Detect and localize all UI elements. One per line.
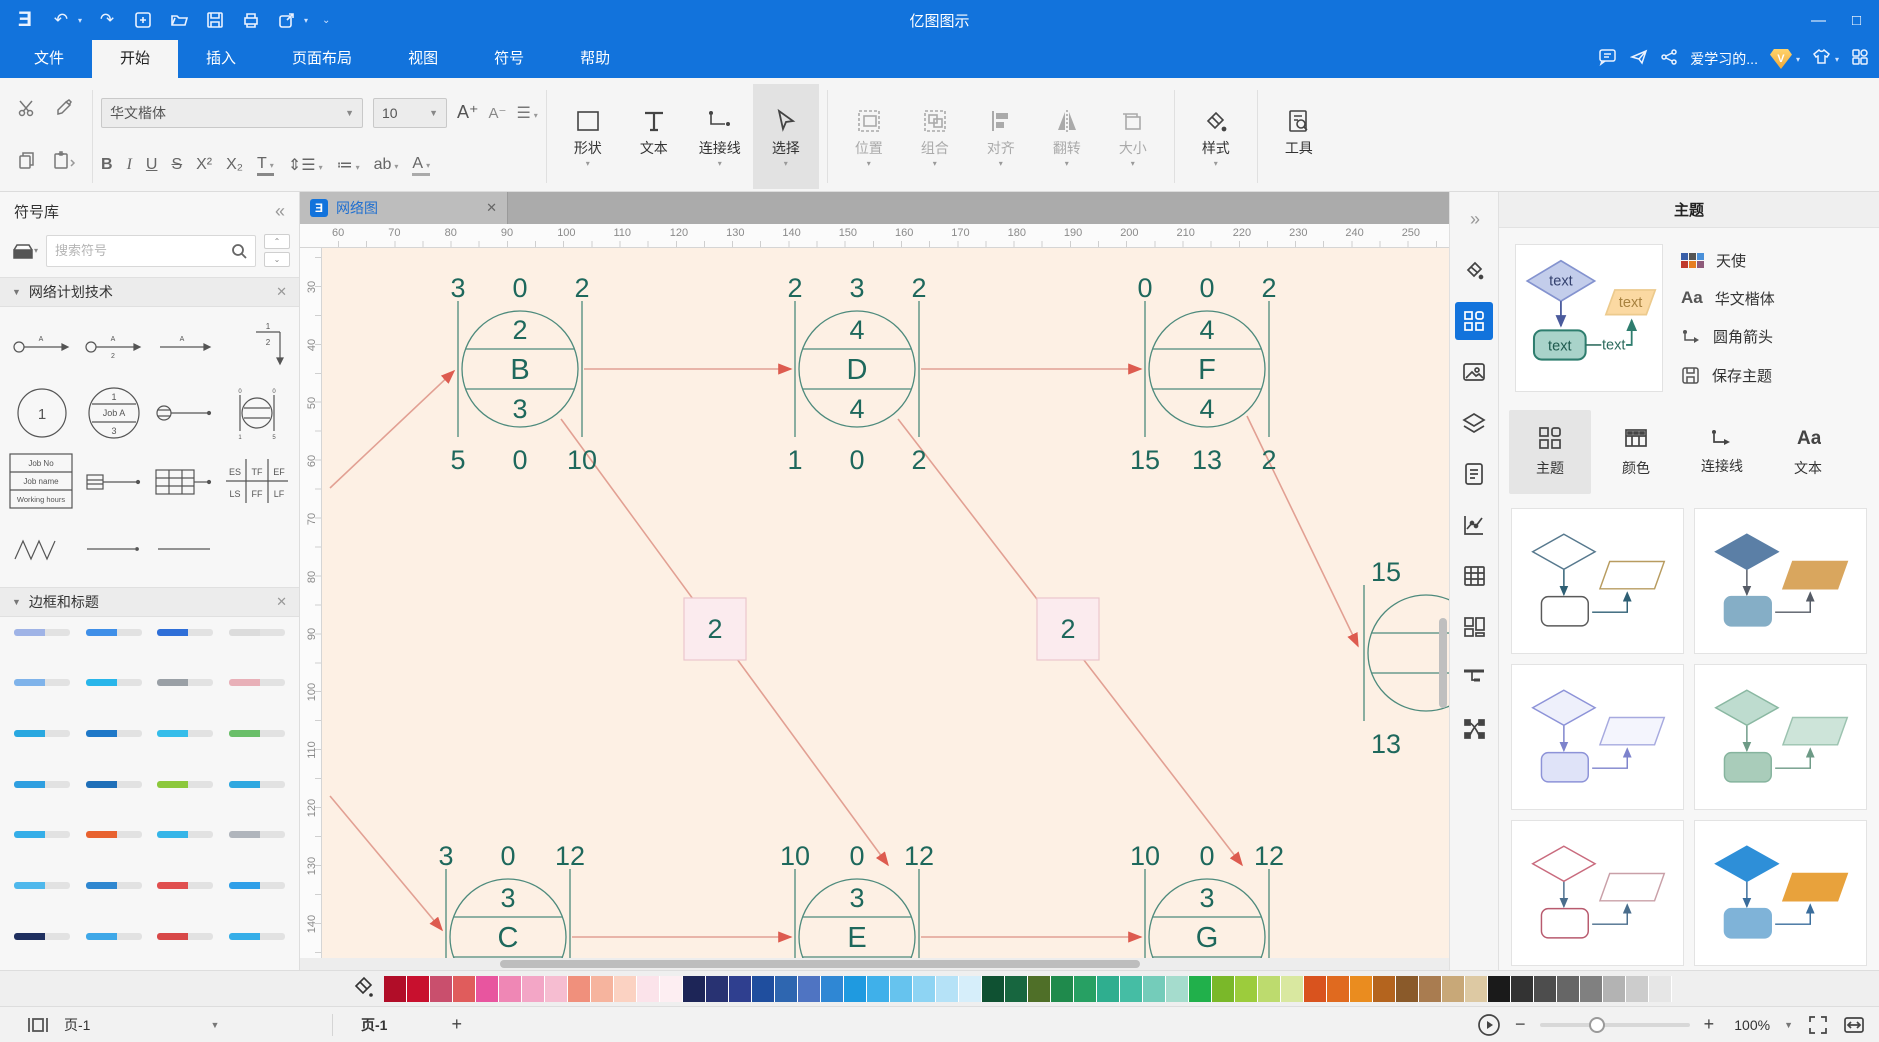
color-swatch[interactable] (522, 976, 545, 1002)
symbol-library-title: 符号库 (14, 201, 59, 222)
svg-text:2: 2 (111, 353, 115, 360)
color-swatch[interactable] (1281, 976, 1304, 1002)
color-swatch[interactable] (1488, 976, 1511, 1002)
library-scroll-down-button[interactable]: ⌄ (264, 252, 290, 267)
zoom-slider-knob[interactable] (1589, 1017, 1605, 1033)
superscript-button[interactable]: X² (196, 156, 212, 174)
style-label: 样式 (1202, 138, 1230, 158)
fill-style-icon[interactable] (1455, 251, 1493, 289)
border-title-thumbnail[interactable] (6, 726, 78, 740)
share-caret[interactable]: ▾ (304, 16, 308, 25)
share-nodes-icon[interactable] (1660, 48, 1678, 71)
dependency-edge[interactable] (330, 796, 442, 930)
vertical-scrollbar[interactable] (1439, 618, 1447, 708)
ruler-label: 210 (1177, 227, 1195, 239)
color-swatch[interactable] (499, 976, 522, 1002)
ribbon-flip-button[interactable]: 翻转▾ (1034, 84, 1100, 189)
section-close-icon[interactable]: ✕ (276, 594, 287, 610)
font-family-select[interactable]: 华文楷体▼ (101, 98, 363, 128)
horizontal-scrollbar[interactable] (300, 958, 1449, 970)
fullscreen-icon[interactable] (1807, 1014, 1829, 1036)
node-value: C (498, 922, 519, 954)
activity-node-B[interactable]: 3022B35010 (450, 273, 597, 475)
ruler-label: 40 (306, 335, 318, 355)
svg-text:0: 0 (272, 389, 276, 395)
color-swatch[interactable] (729, 976, 752, 1002)
activity-node-G[interactable]: 100123G (1130, 841, 1284, 958)
skin-icon[interactable] (1812, 48, 1831, 70)
border-title-thumbnail[interactable] (150, 828, 222, 842)
color-swatch[interactable] (1120, 976, 1143, 1002)
svg-text:0: 0 (238, 389, 242, 395)
color-swatch[interactable] (1051, 976, 1074, 1002)
ruler-label: 60 (306, 451, 318, 471)
line-spacing-button[interactable]: ⇕☰▾ (288, 155, 323, 175)
section-network-planning[interactable]: ▼ 网络计划技术 ✕ (0, 277, 299, 307)
color-swatch[interactable] (1189, 976, 1212, 1002)
color-swatch[interactable] (1028, 976, 1051, 1002)
border-title-thumbnail[interactable] (78, 726, 150, 740)
underline-button[interactable]: U (146, 156, 158, 174)
color-swatch[interactable] (821, 976, 844, 1002)
border-title-thumbnail[interactable] (221, 929, 293, 943)
symbol-zigzag[interactable] (6, 517, 78, 581)
color-swatch[interactable] (1166, 976, 1189, 1002)
italic-button[interactable]: I (127, 156, 132, 174)
symbol-small-node-arrow[interactable] (150, 381, 222, 445)
color-swatch[interactable] (706, 976, 729, 1002)
menu-tab-1[interactable]: 开始 (92, 40, 178, 78)
strikethrough-button[interactable]: S (171, 156, 182, 174)
color-swatch[interactable] (1511, 976, 1534, 1002)
node-value: E (847, 922, 866, 954)
svg-text:5: 5 (272, 435, 276, 441)
maximize-button[interactable]: □ (1852, 12, 1861, 29)
symbol-event-arrow[interactable]: A (6, 313, 78, 377)
menu-tab-2[interactable]: 插入 (178, 40, 264, 78)
symbol-event-arrow-2[interactable]: A2 (78, 313, 150, 377)
color-swatch[interactable] (1557, 976, 1580, 1002)
skin-caret[interactable]: ▾ (1835, 55, 1839, 64)
document-tab[interactable]: Ǝ 网络图 ✕ (300, 192, 508, 224)
color-swatch[interactable] (614, 976, 637, 1002)
border-title-thumbnail[interactable] (6, 625, 78, 639)
theme-card-0[interactable] (1511, 508, 1684, 654)
theme-font[interactable]: Aa 华文楷体 (1681, 288, 1775, 309)
theme-card-2[interactable] (1511, 664, 1684, 810)
theme-card-5[interactable] (1694, 820, 1867, 966)
border-title-thumbnail[interactable] (150, 777, 222, 791)
save-button[interactable] (204, 9, 226, 31)
copy-button[interactable] (17, 150, 37, 175)
svg-text:FF: FF (252, 489, 263, 499)
theme-card-1[interactable] (1694, 508, 1867, 654)
border-title-thumbnail[interactable] (221, 676, 293, 690)
image-panel-icon[interactable] (1455, 353, 1493, 391)
node-value: 2 (1261, 445, 1276, 475)
symbol-search-box[interactable] (46, 235, 256, 267)
color-swatch[interactable] (844, 976, 867, 1002)
title-bar: Ǝ ↶▾ ↷ ▾ ⌄ 亿图图示 — □ (0, 0, 1879, 40)
symbol-grid: A A2 A 12 1 1Job A3 0015 Job NoJob nameW… (0, 307, 299, 587)
subscript-button[interactable]: X₂ (226, 156, 243, 174)
redo-button[interactable]: ↷ (96, 9, 118, 31)
theme-connector[interactable]: 圆角箭头 (1681, 326, 1775, 347)
presentation-play-icon[interactable] (1477, 1013, 1501, 1037)
color-swatch[interactable] (683, 976, 706, 1002)
current-theme-preview: text text text text (1515, 244, 1663, 392)
layers-panel-icon[interactable] (1455, 404, 1493, 442)
section-close-icon[interactable]: ✕ (276, 284, 287, 300)
increase-font-button[interactable]: A⁺ (457, 102, 479, 123)
font-size-value: 10 (382, 105, 419, 121)
paste-button[interactable] (52, 150, 76, 175)
color-swatch[interactable] (775, 976, 798, 1002)
color-swatch[interactable] (1212, 976, 1235, 1002)
node-value: 1 (787, 445, 802, 475)
color-swatch[interactable] (1603, 976, 1626, 1002)
ribbon-align-button[interactable]: 对齐▾ (968, 84, 1034, 189)
color-swatch[interactable] (1097, 976, 1120, 1002)
border-title-thumbnail[interactable] (221, 828, 293, 842)
svg-text:ES: ES (229, 467, 241, 477)
ruler-label: 230 (1289, 227, 1307, 239)
list-button[interactable]: ≔▾ (337, 155, 360, 175)
symbol-es-ef-table[interactable]: ESTFEFLSFFLF (221, 449, 293, 513)
menu-bar: 文件开始插入页面布局视图符号帮助 爱学习的... V ▾ ▾ (0, 40, 1879, 78)
border-title-thumbnail[interactable] (78, 879, 150, 893)
ribbon-position-button[interactable]: 位置▾ (836, 84, 902, 189)
highlight-button[interactable]: ab▾ (374, 156, 399, 174)
section-expand-icon[interactable]: ▼ (12, 287, 21, 297)
font-icon: Aa (1681, 288, 1703, 308)
ruler-label: 220 (1233, 227, 1251, 239)
node-value: 3 (512, 394, 527, 424)
color-swatch[interactable] (890, 976, 913, 1002)
activity-node-C[interactable]: 30123C (438, 841, 585, 958)
ruler-label: 150 (839, 227, 857, 239)
ruler-label: 60 (332, 227, 344, 239)
border-title-thumbnail[interactable] (221, 726, 293, 740)
ruler-label: 80 (306, 567, 318, 587)
ribbon-group-button[interactable]: 组合▾ (902, 84, 968, 189)
symbol-line[interactable] (150, 517, 222, 581)
ruler-label: 120 (306, 798, 318, 818)
color-swatch[interactable] (1373, 976, 1396, 1002)
expand-panel-icon[interactable]: » (1455, 200, 1493, 238)
send-icon[interactable] (1630, 48, 1648, 71)
symbol-empty (221, 517, 293, 581)
node-value: 2 (911, 445, 926, 475)
fill-color-icon[interactable] (352, 974, 374, 1003)
apps-grid-icon[interactable] (1851, 48, 1869, 71)
color-swatch[interactable] (913, 976, 936, 1002)
activity-node-E[interactable]: 100123E (780, 841, 934, 958)
border-title-thumbnail[interactable] (150, 676, 222, 690)
border-title-thumbnail[interactable] (150, 879, 222, 893)
theme-tab-color[interactable]: 颜色 (1595, 410, 1677, 494)
symbol-small-table-arrow[interactable] (78, 449, 150, 513)
section-expand-icon[interactable]: ▼ (12, 597, 21, 607)
fit-width-icon[interactable] (1843, 1014, 1865, 1036)
bold-button[interactable]: B (101, 156, 113, 174)
color-swatch[interactable] (936, 976, 959, 1002)
page-tab[interactable]: 页-1 (361, 1015, 387, 1035)
node-value: 4 (1199, 394, 1214, 424)
feedback-icon[interactable] (1598, 48, 1618, 71)
svg-text:LS: LS (230, 489, 241, 499)
outline-panel-icon[interactable] (1455, 659, 1493, 697)
ruler-label: 130 (306, 856, 318, 876)
color-swatch[interactable] (1442, 976, 1465, 1002)
paint-bucket-icon (1203, 108, 1229, 134)
theme-tab-text[interactable]: Aa文本 (1767, 410, 1849, 494)
border-title-thumbnail[interactable] (6, 929, 78, 943)
search-icon (231, 243, 247, 259)
node-value: 2 (707, 614, 722, 644)
app-logo-icon: Ǝ (14, 9, 36, 31)
relationship-panel-icon[interactable] (1455, 710, 1493, 748)
style-button[interactable]: 样式 ▾ (1183, 84, 1249, 189)
color-swatch[interactable] (982, 976, 1005, 1002)
theme-panel-icon[interactable] (1455, 302, 1493, 340)
activity-node-partial[interactable]: 1513 (1364, 557, 1449, 759)
ruler-label: 90 (306, 624, 318, 644)
zoom-out-button[interactable]: − (1515, 1014, 1526, 1035)
notes-panel-icon[interactable] (1455, 455, 1493, 493)
node-value: 2 (574, 273, 589, 303)
svg-text:Working hours: Working hours (17, 495, 65, 504)
color-swatch[interactable] (1258, 976, 1281, 1002)
color-swatch[interactable] (1396, 976, 1419, 1002)
ribbon: 华文楷体▼ 10▼ A⁺ A⁻ ☰▾ B I U S X² X₂ T▾ ⇕☰▾ … (0, 78, 1879, 192)
theme-panel: 主题 text text text (1499, 192, 1879, 970)
app-window: Ǝ ↶▾ ↷ ▾ ⌄ 亿图图示 — □ 文件开始插入页面布局视图符号帮助 爱学习… (0, 0, 1879, 1042)
color-swatch[interactable] (453, 976, 476, 1002)
node-value: 13 (1371, 729, 1401, 759)
zoom-level[interactable]: 100% (1728, 1017, 1770, 1033)
font-family-value: 华文楷体 (110, 103, 335, 123)
menu-tab-3[interactable]: 页面布局 (264, 40, 380, 78)
color-swatch[interactable] (1327, 976, 1350, 1002)
node-value: 0 (512, 273, 527, 303)
color-swatch[interactable] (407, 976, 430, 1002)
tool-button[interactable]: 工具 ▾ (1266, 84, 1332, 189)
svg-text:LF: LF (274, 489, 285, 499)
pattern-panel-icon[interactable] (1455, 608, 1493, 646)
symbol-line-dot[interactable] (78, 517, 150, 581)
color-swatch[interactable] (1626, 976, 1649, 1002)
vip-caret[interactable]: ▾ (1796, 55, 1800, 64)
color-swatch[interactable] (1350, 976, 1373, 1002)
border-title-thumbnail[interactable] (6, 777, 78, 791)
symbol-node-circle[interactable]: 1 (6, 381, 78, 445)
color-swatch[interactable] (959, 976, 982, 1002)
account-name[interactable]: 爱学习的... (1690, 49, 1758, 69)
network-diagram[interactable]: 3022B350102324D41020024F41513230123C1001… (322, 248, 1449, 958)
symbol-node-with-times[interactable]: 0015 (221, 381, 293, 445)
chart-panel-icon[interactable] (1455, 506, 1493, 544)
ribbon-connector-button[interactable]: 连接线▾ (687, 84, 753, 189)
color-swatch[interactable] (545, 976, 568, 1002)
ruler-label: 250 (1402, 227, 1420, 239)
open-file-button[interactable] (168, 9, 190, 31)
theme-card-4[interactable] (1511, 820, 1684, 966)
border-title-thumbnail[interactable] (6, 879, 78, 893)
color-swatch[interactable] (1649, 976, 1672, 1002)
ribbon-shape-button[interactable]: 形状▾ (555, 84, 621, 189)
border-title-thumbnail[interactable] (150, 929, 222, 943)
format-painter-button[interactable] (54, 98, 74, 123)
node-value: 3 (450, 273, 465, 303)
font-color-button[interactable]: A▾ (412, 155, 430, 176)
zoom-caret[interactable]: ▼ (1784, 1020, 1793, 1030)
share-button[interactable] (276, 9, 298, 31)
ribbon-text-button[interactable]: 文本▾ (621, 84, 687, 189)
svg-text:1: 1 (238, 435, 242, 441)
node-value: 4 (849, 394, 864, 424)
table-panel-icon[interactable] (1455, 557, 1493, 595)
color-swatch[interactable] (1465, 976, 1488, 1002)
node-value: 0 (1137, 273, 1152, 303)
tool-label: 工具 (1285, 138, 1313, 158)
decrease-font-button[interactable]: A⁻ (489, 104, 507, 122)
print-button[interactable] (240, 9, 262, 31)
ribbon-size-button[interactable]: 大小▾ (1100, 84, 1166, 189)
border-title-thumbnail[interactable] (78, 625, 150, 639)
add-page-button[interactable]: + (451, 1014, 462, 1035)
color-swatch[interactable] (430, 976, 453, 1002)
node-value: 2 (512, 315, 527, 345)
new-file-button[interactable] (132, 9, 154, 31)
vip-badge[interactable]: V (1770, 49, 1792, 69)
menu-tab-5[interactable]: 符号 (466, 40, 552, 78)
svg-text:text: text (1548, 338, 1572, 354)
cut-button[interactable] (17, 98, 37, 123)
minimize-button[interactable]: — (1811, 12, 1826, 29)
section-borders-titles[interactable]: ▼ 边框和标题 ✕ (0, 587, 299, 617)
ruler-label: 110 (614, 227, 632, 239)
color-swatch[interactable] (867, 976, 890, 1002)
svg-text:3: 3 (111, 426, 116, 436)
border-title-thumbnail[interactable] (6, 828, 78, 842)
symbol-fraction-connector[interactable]: 12 (221, 313, 293, 377)
document-tab-close-icon[interactable]: ✕ (486, 200, 497, 216)
undo-button[interactable]: ↶ (50, 9, 72, 31)
document-tab-label: 网络图 (336, 198, 478, 218)
border-title-thumbnail[interactable] (78, 929, 150, 943)
duration-box[interactable]: 2 (1037, 598, 1099, 660)
theme-tab-theme[interactable]: 主题 (1509, 410, 1591, 494)
text-color-button[interactable]: T▾ (257, 155, 274, 176)
color-swatch[interactable] (1580, 976, 1603, 1002)
symbol-search-input[interactable] (55, 243, 231, 258)
connector-icon (1681, 328, 1701, 346)
border-title-thumbnail[interactable] (221, 777, 293, 791)
theme-color-scheme[interactable]: 天使 (1681, 250, 1775, 271)
theme-tab-connector[interactable]: 连接线 (1681, 410, 1763, 494)
library-drawer-icon[interactable]: ▾ (12, 242, 38, 260)
border-title-thumbnail[interactable] (150, 625, 222, 639)
zoom-slider[interactable] (1540, 1023, 1690, 1027)
pages-view-icon[interactable] (26, 1016, 50, 1034)
drawing-canvas[interactable]: 30405060708090100110120130140150 3022B35… (300, 248, 1449, 958)
symbol-grid-table-arrow[interactable] (150, 449, 222, 513)
zoom-in-button[interactable]: + (1704, 1014, 1715, 1035)
save-theme-button[interactable]: 保存主题 (1681, 365, 1775, 386)
ruler-label: 190 (1064, 227, 1082, 239)
right-tool-strip: » (1449, 192, 1499, 970)
theme-card-3[interactable] (1694, 664, 1867, 810)
align-button[interactable]: ☰▾ (516, 103, 537, 123)
border-title-thumbnail[interactable] (78, 676, 150, 690)
color-swatch[interactable] (798, 976, 821, 1002)
activity-node-D[interactable]: 2324D4102 (787, 273, 926, 475)
border-title-thumbnail[interactable] (221, 879, 293, 893)
node-value: 15 (1130, 445, 1160, 475)
menu-tab-6[interactable]: 帮助 (552, 40, 638, 78)
color-swatch[interactable] (1235, 976, 1258, 1002)
color-swatch[interactable] (752, 976, 775, 1002)
activity-node-F[interactable]: 0024F415132 (1130, 273, 1277, 475)
color-swatch[interactable] (476, 976, 499, 1002)
color-swatch[interactable] (591, 976, 614, 1002)
customize-toolbar-caret[interactable]: ⌄ (322, 15, 330, 26)
node-value: 0 (849, 445, 864, 475)
page-selector[interactable]: 页-1 ▼ (64, 1015, 304, 1035)
color-swatch[interactable] (660, 976, 683, 1002)
svg-text:A: A (110, 336, 115, 343)
color-swatch[interactable] (1304, 976, 1327, 1002)
duration-box[interactable]: 2 (684, 598, 746, 660)
collapse-sidebar-icon[interactable]: « (275, 201, 285, 222)
menu-tab-0[interactable]: 文件 (6, 40, 92, 78)
color-swatch[interactable] (568, 976, 591, 1002)
color-swatch[interactable] (384, 976, 407, 1002)
color-swatch[interactable] (1074, 976, 1097, 1002)
node-value: 10 (1130, 841, 1160, 871)
svg-text:text: text (1602, 337, 1626, 353)
dependency-edge[interactable] (330, 371, 454, 488)
font-size-select[interactable]: 10▼ (373, 98, 447, 128)
ribbon-select-button[interactable]: 选择▾ (753, 84, 819, 189)
symbol-activity-arrow[interactable]: A (150, 313, 222, 377)
ruler-label: 50 (306, 393, 318, 413)
border-title-thumbnail[interactable] (6, 676, 78, 690)
border-title-thumbnail[interactable] (221, 625, 293, 639)
library-scroll-up-button[interactable]: ⌃ (264, 234, 290, 249)
color-swatch[interactable] (637, 976, 660, 1002)
ruler-label: 160 (895, 227, 913, 239)
node-value: 3 (1199, 883, 1214, 913)
undo-caret[interactable]: ▾ (78, 16, 82, 25)
color-swatch[interactable] (1419, 976, 1442, 1002)
border-title-thumbnail[interactable] (78, 777, 150, 791)
ruler-label: 70 (306, 509, 318, 529)
border-title-thumbnail[interactable] (78, 828, 150, 842)
color-swatch[interactable] (1005, 976, 1028, 1002)
color-swatch[interactable] (1534, 976, 1557, 1002)
svg-text:1: 1 (38, 406, 46, 423)
color-swatch[interactable] (1143, 976, 1166, 1002)
quick-access-toolbar: Ǝ ↶▾ ↷ ▾ ⌄ (0, 9, 330, 31)
symbol-job-circle[interactable]: 1Job A3 (78, 381, 150, 445)
border-title-thumbnail[interactable] (150, 726, 222, 740)
palette-icon (1681, 253, 1704, 268)
menu-tab-4[interactable]: 视图 (380, 40, 466, 78)
symbol-job-box[interactable]: Job NoJob nameWorking hours (6, 449, 78, 513)
status-bar: 页-1 ▼ 页-1 + − + 100% ▼ (0, 1006, 1879, 1042)
